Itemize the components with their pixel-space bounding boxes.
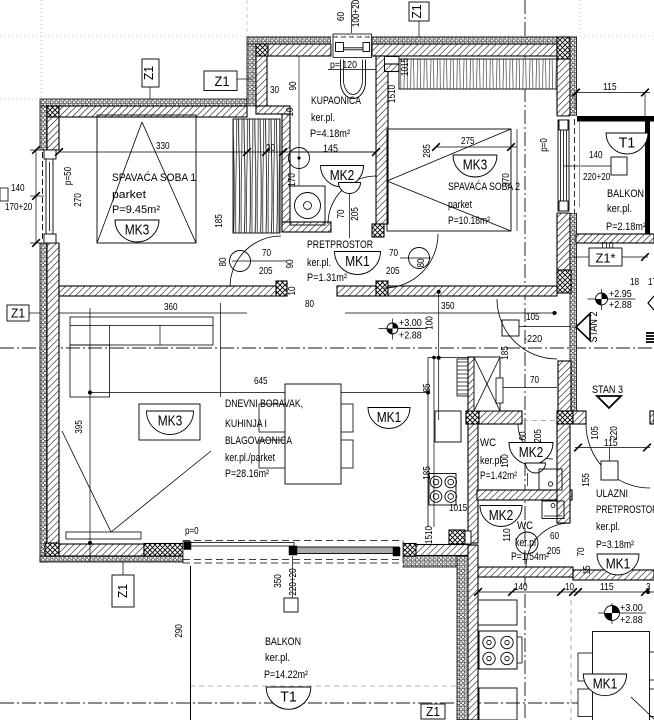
svg-text:80: 80 [415,258,427,267]
svg-text:MK1: MK1 [593,676,618,693]
svg-text:20: 20 [266,142,275,154]
svg-text:STAN 2: STAN 2 [588,312,600,343]
svg-text:ker.pl.: ker.pl. [311,112,335,124]
svg-text:MK3: MK3 [158,413,183,430]
svg-text:1015: 1015 [449,502,467,514]
svg-text:10: 10 [565,581,574,593]
svg-text:SPAVAĆA SOBA 2: SPAVAĆA SOBA 2 [448,180,520,193]
svg-text:110: 110 [501,528,513,542]
svg-text:PRETPROSTOR: PRETPROSTOR [596,504,654,516]
svg-text:Z1: Z1 [11,306,25,321]
svg-text:BLAGOVAONICA: BLAGOVAONICA [225,435,293,447]
svg-text:10: 10 [284,107,296,116]
svg-text:30: 30 [270,84,279,96]
svg-text:290: 290 [173,624,185,638]
svg-text:ULAZNI: ULAZNI [596,488,628,500]
svg-text:ker.pl.: ker.pl. [265,652,290,664]
svg-text:1510: 1510 [386,85,398,103]
svg-text:Z1: Z1 [115,584,130,598]
svg-text:360: 360 [164,301,178,313]
svg-text:18: 18 [630,276,639,288]
svg-text:ker.pl./parket: ker.pl./parket [225,452,275,464]
svg-text:15: 15 [581,565,593,574]
svg-text:105: 105 [589,426,601,440]
svg-text:WC: WC [517,520,533,532]
svg-text:PRETPROSTOR: PRETPROSTOR [307,239,373,251]
svg-text:P=1.42m²: P=1.42m² [480,470,517,482]
svg-text:BALKON: BALKON [265,636,301,648]
svg-text:155: 155 [580,473,592,487]
svg-text:100: 100 [424,316,436,330]
svg-text:DNEVNI BORAVAK,: DNEVNI BORAVAK, [225,398,303,410]
svg-text:MK2: MK2 [519,444,544,461]
svg-text:80: 80 [217,257,229,266]
svg-text:ker.pl.: ker.pl. [307,257,331,269]
svg-text:140: 140 [11,182,25,194]
svg-text:Z1: Z1 [426,704,440,719]
svg-text:220+20: 220+20 [583,171,610,183]
svg-text:ker.pl: ker.pl [515,537,536,549]
svg-text:KUHINJA I: KUHINJA I [225,418,267,430]
svg-text:205: 205 [547,545,561,557]
svg-text:MK1: MK1 [345,253,370,270]
svg-text:parket: parket [112,189,146,201]
svg-text:Z1: Z1 [409,5,424,19]
svg-text:P=9.45m²: P=9.45m² [112,204,160,216]
svg-text:60: 60 [335,12,347,21]
svg-text:145: 145 [323,143,338,155]
svg-text:MK2: MK2 [489,507,514,524]
svg-text:395: 395 [73,420,85,434]
svg-text:185: 185 [421,466,433,480]
svg-text:P=14.22m²: P=14.22m² [264,669,308,681]
svg-text:80: 80 [305,298,314,310]
svg-text:70: 70 [262,247,271,259]
svg-text:140: 140 [514,581,528,593]
svg-text:70: 70 [530,374,539,386]
svg-text:+3.00: +3.00 [620,602,643,614]
svg-text:+3.00: +3.00 [399,317,422,329]
svg-text:parket: parket [448,199,472,211]
svg-text:p=0: p=0 [538,138,550,152]
svg-text:60: 60 [550,530,559,542]
svg-text:ker.pl.: ker.pl. [596,521,620,533]
svg-text:350: 350 [441,300,455,312]
svg-text:BALKON: BALKON [607,188,644,200]
svg-text:170: 170 [286,173,298,187]
svg-text:170+20: 170+20 [5,201,32,213]
svg-text:KUPAONICA: KUPAONICA [311,95,362,107]
svg-text:1015: 1015 [399,58,411,76]
svg-text:70: 70 [389,247,398,259]
svg-text:115: 115 [603,81,617,93]
svg-text:17: 17 [648,276,654,288]
svg-text:T1: T1 [280,689,296,706]
svg-text:MK3: MK3 [463,157,488,174]
svg-text:P=2.18m²: P=2.18m² [606,221,646,233]
svg-text:10: 10 [286,286,298,295]
svg-text:P=1.31m²: P=1.31m² [307,272,347,284]
svg-text:330: 330 [156,140,170,152]
svg-text:P=10.18m²: P=10.18m² [448,215,490,227]
svg-text:T1: T1 [619,135,635,152]
svg-text:270: 270 [72,193,84,207]
svg-text:220+20: 220+20 [287,568,299,595]
svg-text:MK1: MK1 [377,409,402,426]
svg-text:115: 115 [604,437,618,449]
svg-text:P=4.18m²: P=4.18m² [310,128,350,140]
svg-text:MK1: MK1 [606,556,631,573]
svg-text:Z1: Z1 [215,74,230,89]
svg-text:185: 185 [213,214,225,228]
svg-text:185: 185 [499,346,511,360]
svg-text:SPAVAĆA SOBA 1: SPAVAĆA SOBA 1 [112,171,196,184]
svg-text:205: 205 [386,265,400,277]
svg-text:P=3.18m²: P=3.18m² [596,539,634,551]
svg-text:WC: WC [480,437,496,449]
svg-text:205: 205 [532,429,544,443]
svg-text:115: 115 [600,581,614,593]
svg-text:70: 70 [575,547,587,556]
svg-text:+2.88: +2.88 [609,299,632,311]
svg-text:P=1.54m²: P=1.54m² [511,551,549,563]
svg-text:350: 350 [272,574,284,588]
svg-text:p=50: p=50 [62,167,74,185]
svg-text:MK2: MK2 [330,167,355,184]
svg-text:p=0: p=0 [185,525,199,537]
svg-text:275: 275 [461,135,475,147]
svg-text:90: 90 [287,81,299,90]
svg-text:+2.88: +2.88 [620,614,643,626]
svg-text:90: 90 [284,259,296,268]
svg-text:Z1*: Z1* [596,251,616,266]
svg-text:ker.pl.: ker.pl. [607,203,632,215]
svg-text:140: 140 [589,149,603,161]
svg-text:P=28.16m²: P=28.16m² [225,468,269,480]
svg-text:1510: 1510 [423,526,435,544]
svg-text:Z1: Z1 [141,66,156,80]
svg-text:MK3: MK3 [125,222,150,239]
svg-text:205: 205 [349,207,361,221]
svg-text:645: 645 [254,375,268,387]
svg-text:105: 105 [526,311,540,323]
svg-text:+2.88: +2.88 [399,330,422,342]
svg-text:-220: -220 [524,333,542,345]
svg-text:60: 60 [517,431,529,440]
svg-text:100: 100 [499,454,511,468]
svg-text:70: 70 [335,209,347,218]
svg-text:205: 205 [259,265,273,277]
svg-text:285: 285 [421,144,433,158]
svg-text:3: 3 [646,581,651,593]
svg-text:STAN 3: STAN 3 [592,384,623,396]
